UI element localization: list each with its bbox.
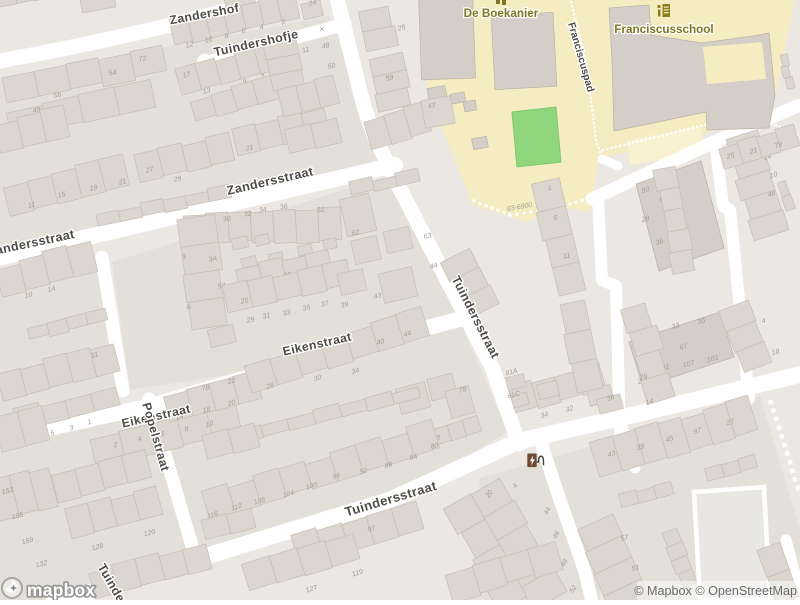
svg-text:mapbox: mapbox	[27, 580, 95, 600]
svg-text:31: 31	[316, 206, 325, 214]
svg-text:34: 34	[258, 206, 267, 214]
svg-text:30: 30	[222, 215, 231, 223]
svg-text:32: 32	[243, 210, 252, 218]
svg-text:Franciscusschool: Franciscusschool	[614, 23, 713, 36]
svg-text:© Mapbox © OpenStreetMap: © Mapbox © OpenStreetMap	[634, 584, 797, 598]
svg-text:×: ×	[319, 24, 324, 34]
svg-text:11: 11	[563, 252, 571, 260]
svg-text:36: 36	[279, 203, 288, 211]
svg-text:De Boekanier: De Boekanier	[464, 7, 539, 20]
